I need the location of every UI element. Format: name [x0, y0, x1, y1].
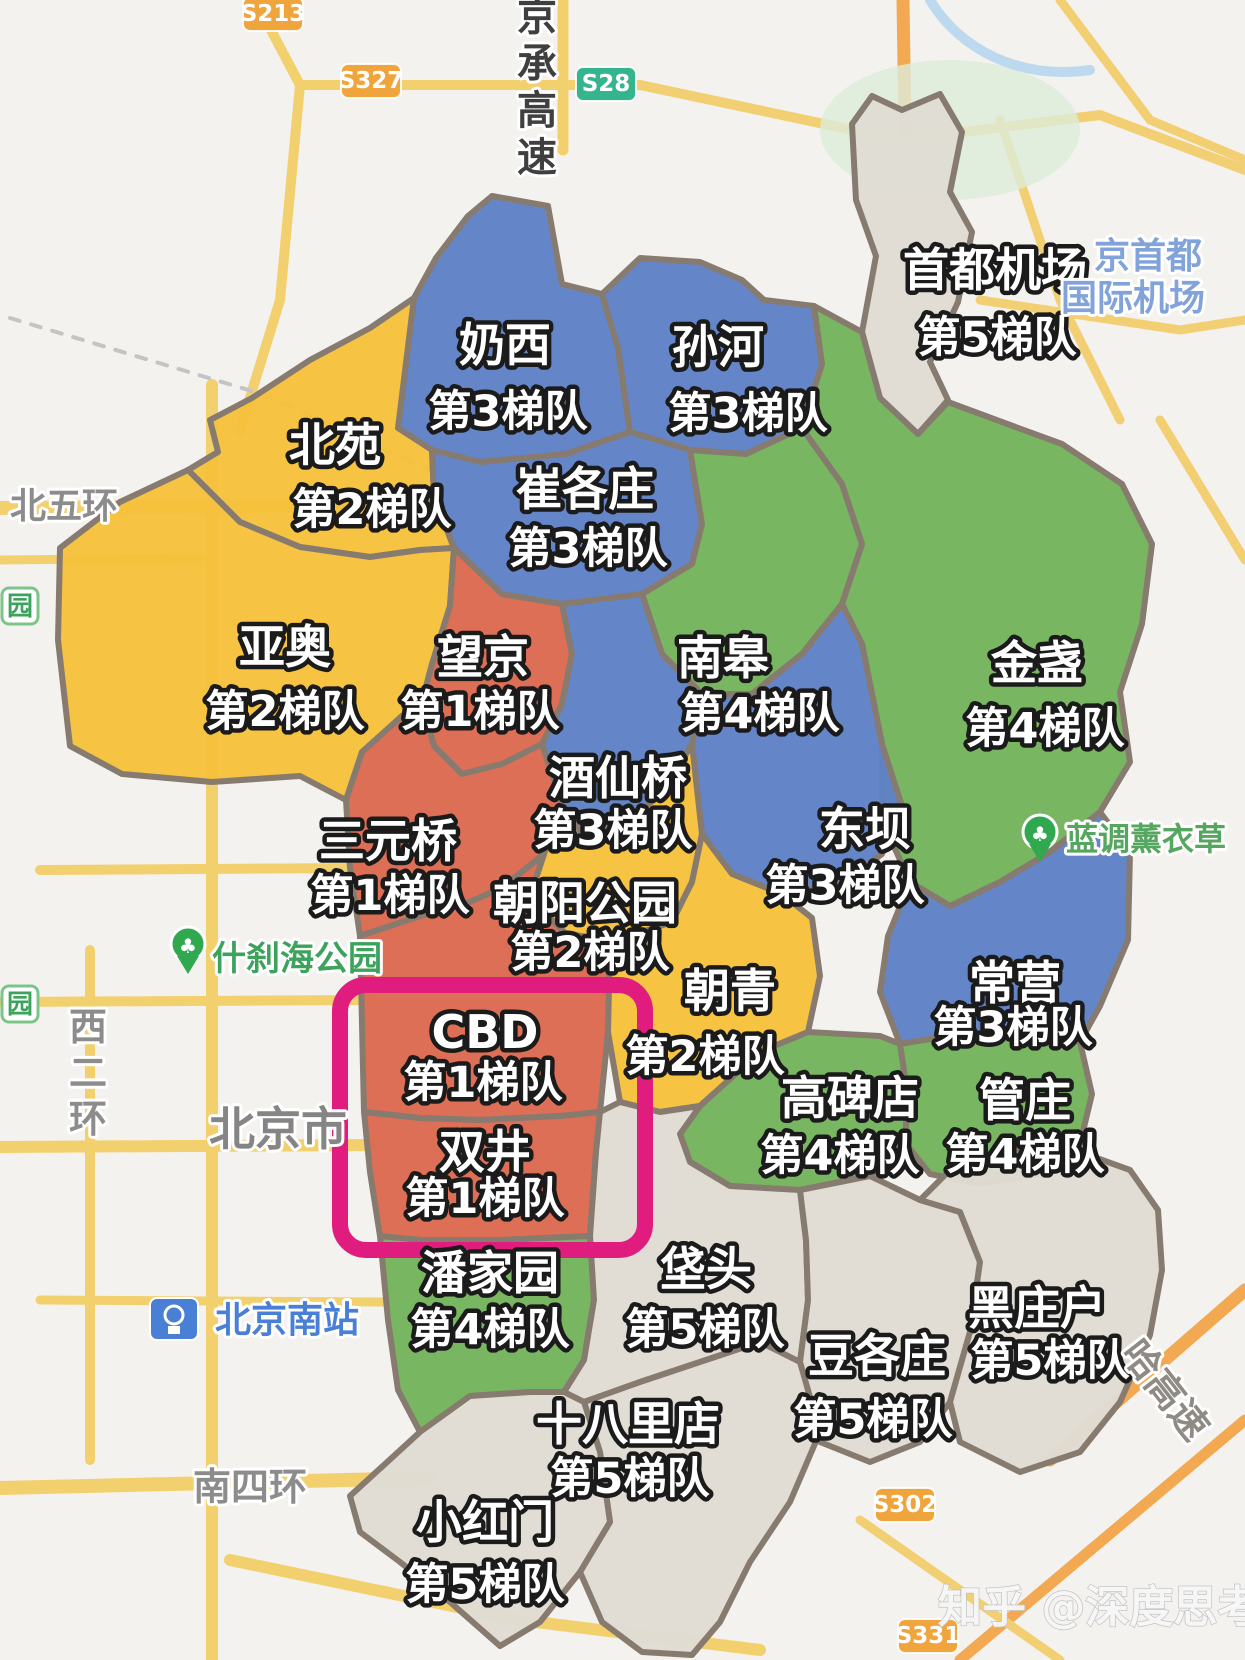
region-tier-chaoyanggongyuan: 第2梯队 [511, 928, 671, 978]
map-label-jingcheng-expwy: 京承高速 [517, 0, 557, 181]
region-name-yaao: 亚奥 [239, 620, 331, 674]
map-label-beijingnanzhan: 北京南站 [215, 1299, 359, 1341]
region-name-cuigezhuang: 崔各庄 [516, 462, 654, 516]
region-name-dougezhuang: 豆各庄 [808, 1329, 946, 1383]
map-label-xierhuan: 西二环 [69, 1005, 107, 1141]
region-tier-nangao: 第4梯队 [681, 689, 841, 739]
region-name-nangao: 南皋 [677, 631, 770, 685]
svg-text:♣: ♣ [1031, 822, 1049, 846]
region-tier-wangjing: 第1梯队 [401, 687, 561, 737]
region-name-panjiayuan: 潘家园 [421, 1246, 559, 1300]
region-tier-changying: 第3梯队 [934, 1003, 1094, 1053]
svg-text:园: 园 [7, 990, 33, 1020]
map-label-park-badge-1: 园 [2, 588, 38, 624]
region-name-dongba: 东坝 [819, 802, 911, 856]
region-name-chaoyanggongyuan: 朝阳公园 [493, 876, 677, 930]
region-name-wangjing: 望京 [437, 630, 529, 684]
svg-text:♣: ♣ [179, 934, 197, 958]
svg-text:S302: S302 [873, 1492, 938, 1518]
road-badge-s213: S213 [241, 0, 306, 31]
region-tier-shibalidian: 第5梯队 [551, 1454, 711, 1504]
region-tier-gaobeidian: 第4梯队 [761, 1131, 921, 1181]
watermark: 知乎 @深度思考 [938, 1582, 1245, 1633]
region-tier-jinzhan: 第4梯队 [966, 704, 1126, 754]
region-tier-shuangjing: 第1梯队 [406, 1174, 566, 1224]
road-badge-s28: S28 [576, 67, 636, 101]
region-tier-yaao: 第2梯队 [206, 687, 366, 737]
chaoyang-tier-map: 奶西第3梯队孙河第3梯队首都机场第5梯队北苑第2梯队崔各庄第3梯队亚奥第2梯队望… [0, 0, 1245, 1660]
region-tier-naixi: 第3梯队 [429, 387, 589, 437]
region-name-jinzhan: 金盏 [990, 636, 1083, 690]
region-tier-dougezhuang: 第5梯队 [794, 1395, 954, 1445]
region-tier-shoudujichang: 第5梯队 [918, 313, 1078, 363]
region-name-guanzhuang: 管庄 [979, 1073, 1071, 1127]
region-tier-fatou: 第5梯队 [626, 1305, 786, 1355]
svg-text:S28: S28 [582, 71, 631, 97]
region-tier-sunhe: 第3梯队 [669, 389, 829, 439]
map-label-guojijichang: 国际机场 [1061, 278, 1205, 319]
svg-text:S213: S213 [241, 1, 306, 27]
region-name-shuangjing: 双井 [439, 1125, 531, 1179]
railway-station-icon [150, 1298, 198, 1340]
region-tier-panjiayuan: 第4梯队 [411, 1305, 571, 1355]
region-name-jiuxianqiao: 酒仙桥 [549, 751, 687, 805]
road-badge-s302: S302 [873, 1488, 938, 1522]
region-tier-xiaohongmen: 第5梯队 [406, 1560, 566, 1610]
region-name-cbd: CBD [431, 1005, 538, 1059]
region-name-gaobeidian: 高碑店 [781, 1071, 919, 1125]
region-tier-beiyuan: 第2梯队 [293, 485, 453, 535]
region-tier-cbd: 第1梯队 [404, 1058, 564, 1108]
region-tier-dongba: 第3梯队 [766, 861, 926, 911]
map-label-beiwuhuan: 北五环 [10, 486, 118, 527]
map-canvas: 奶西第3梯队孙河第3梯队首都机场第5梯队北苑第2梯队崔各庄第3梯队亚奥第2梯队望… [0, 0, 1245, 1660]
region-name-shibalidian: 十八里店 [536, 1397, 720, 1451]
region-name-sanyuanqiao: 三元桥 [319, 814, 457, 868]
region-name-beiyuan: 北苑 [289, 418, 381, 472]
region-tier-jiuxianqiao: 第3梯队 [534, 806, 694, 856]
map-label-shichahai-park: 什刹海公园 [212, 939, 382, 979]
svg-text:S327: S327 [339, 68, 404, 94]
region-name-shoudujichang: 首都机场 [903, 243, 1087, 297]
map-label-park-badge-2: 园 [2, 986, 38, 1022]
svg-text:园: 园 [7, 592, 33, 622]
region-tier-guanzhuang: 第4梯队 [946, 1130, 1106, 1180]
region-name-heizhuanghu: 黑庄户 [968, 1281, 1106, 1335]
region-tier-chaoqing: 第2梯队 [626, 1032, 786, 1082]
region-name-xiaohongmen: 小红门 [416, 1495, 554, 1549]
region-name-changying: 常营 [969, 956, 1061, 1010]
map-label-landiao-lavender: 蓝调薰衣草 [1066, 820, 1226, 858]
region-name-chaoqing: 朝青 [684, 964, 776, 1018]
region-tier-sanyuanqiao: 第1梯队 [311, 871, 471, 921]
road-badge-s327: S327 [339, 64, 404, 98]
region-name-naixi: 奶西 [459, 318, 551, 372]
region-tier-cuigezhuang: 第3梯队 [509, 524, 669, 574]
map-label-beijingshi: 北京市 [209, 1102, 347, 1156]
region-name-fatou: 垡头 [660, 1242, 752, 1296]
map-label-jingshoudu: 京首都 [1094, 235, 1202, 277]
region-tier-heizhuanghu: 第5梯队 [971, 1336, 1131, 1386]
region-name-sunhe: 孙河 [672, 320, 764, 374]
map-label-nansihuan: 南四环 [193, 1465, 307, 1509]
